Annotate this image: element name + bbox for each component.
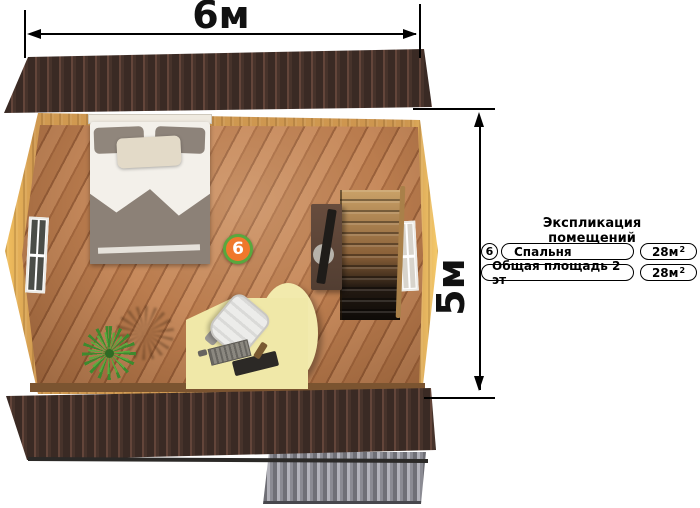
potted-plant [82, 326, 136, 380]
room-number: 6 [232, 239, 244, 259]
legend-room-number: 6 [481, 243, 498, 260]
room-number-badge: 6 [223, 234, 253, 264]
dimension-tick [413, 108, 495, 110]
roof-bottom-slope [3, 388, 437, 460]
legend-total-label-pill: Общая площадь 2 эт [481, 264, 634, 281]
legend-total-label: Общая площадь 2 эт [492, 259, 633, 287]
width-dimension-label: 6м [156, 0, 286, 37]
height-dimension-label: 5м [429, 227, 475, 347]
legend-total-area: 28м [652, 266, 679, 280]
arrow-right-icon [403, 29, 417, 39]
side-table [311, 204, 342, 290]
pillow-center [116, 135, 181, 168]
left-window [25, 217, 49, 294]
roof-top-slope [4, 47, 434, 115]
roof-drip-edge [28, 457, 428, 463]
legend-area-superscript: 2 [679, 266, 685, 275]
legend-room-name: Спальня [514, 245, 572, 259]
arrow-up-icon [474, 112, 484, 127]
plant-center [105, 349, 114, 358]
legend-title: Экспликация помещений [501, 216, 683, 246]
floor-plan-image: 6 6м 5м Экспликация помещений 6 Спальня … [0, 0, 700, 508]
width-dimension-line [30, 33, 416, 35]
arrow-down-icon [474, 376, 484, 391]
dimension-tick [424, 397, 495, 399]
legend-room-area: 28м [652, 245, 679, 259]
window-mullion [402, 255, 414, 259]
staircase [340, 190, 400, 320]
legend-room-number-text: 6 [486, 245, 494, 258]
double-bed [88, 114, 212, 266]
legend-room-area-pill: 28м2 [640, 243, 697, 260]
dimension-tick [24, 10, 26, 58]
legend-room-name-pill: Спальня [501, 243, 634, 260]
arrow-left-icon [27, 29, 41, 39]
dimension-tick [419, 4, 421, 58]
legend-area-superscript: 2 [679, 245, 685, 254]
legend-total-area-pill: 28м2 [640, 264, 697, 281]
